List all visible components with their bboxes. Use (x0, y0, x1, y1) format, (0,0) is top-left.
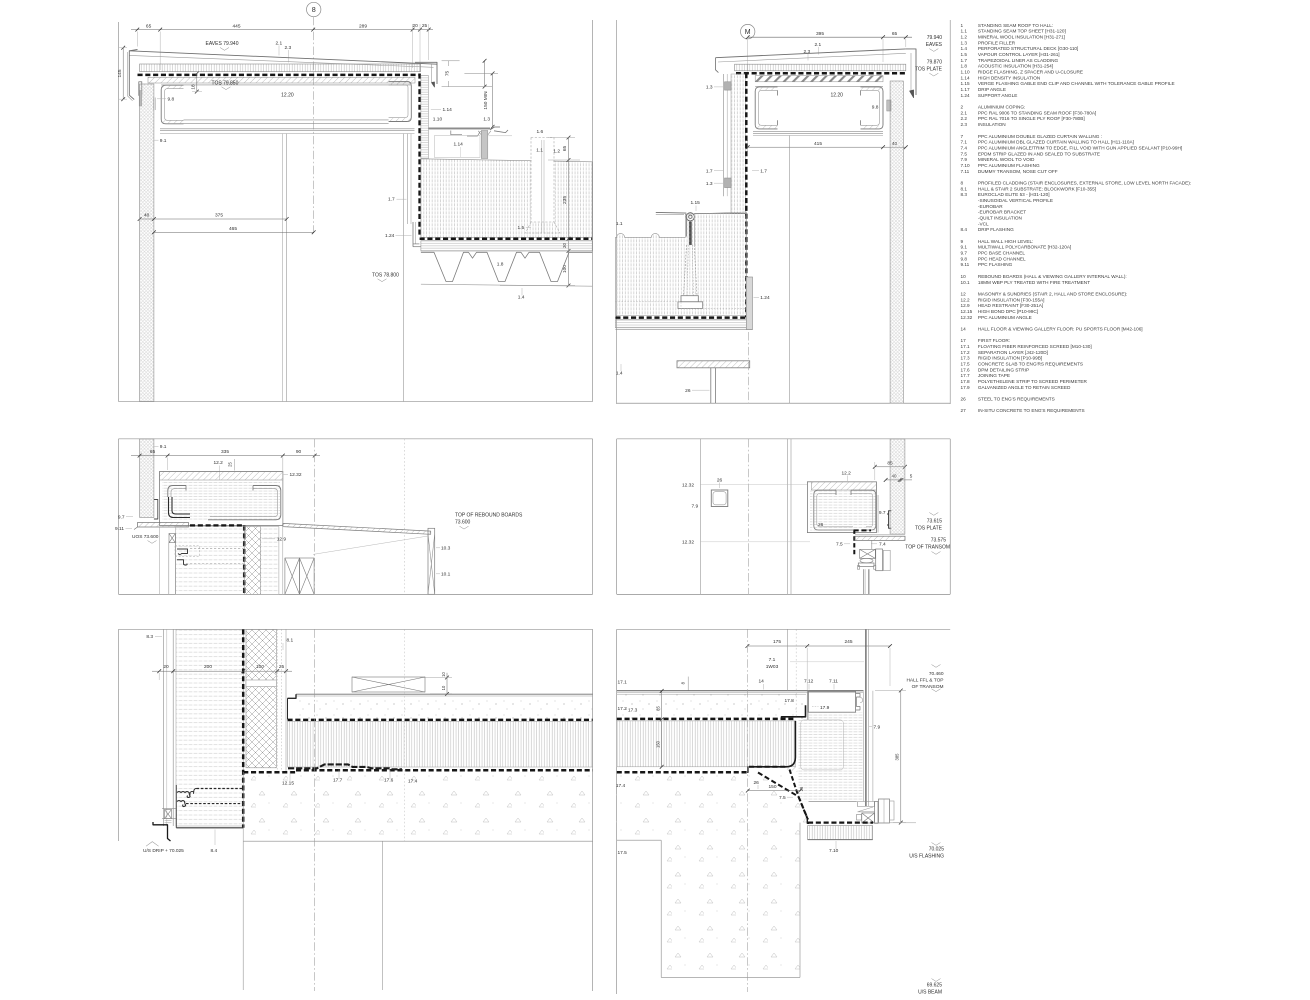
svg-text:2.2: 2.2 (961, 116, 968, 121)
svg-text:18: 18 (191, 84, 197, 90)
svg-text:20: 20 (413, 23, 419, 29)
svg-text:IN-SITU CONCRETE TO ENG'S REQU: IN-SITU CONCRETE TO ENG'S REQUIREMENTS (978, 408, 1085, 413)
svg-text:PPC ALUMINIUM DOUBLE GLAZED CU: PPC ALUMINIUM DOUBLE GLAZED CURTAIN WALL… (978, 134, 1102, 139)
svg-text:HIGH DENSITY INSULATION: HIGH DENSITY INSULATION (978, 75, 1040, 80)
svg-text:26: 26 (818, 522, 824, 528)
svg-text:415: 415 (814, 141, 822, 147)
svg-text:17.2: 17.2 (961, 350, 971, 355)
svg-text:1.3: 1.3 (706, 85, 713, 91)
svg-text:73.600: 73.600 (455, 519, 471, 525)
svg-text:75: 75 (444, 71, 450, 77)
svg-text:27: 27 (961, 408, 967, 413)
svg-text:FLOATING FIBER REINFORCED SCRE: FLOATING FIBER REINFORCED SCREED [M10-13… (978, 344, 1092, 349)
svg-text:ACOUSTIC INSULATION [H31-254]: ACOUSTIC INSULATION [H31-254] (978, 64, 1053, 69)
svg-text:1.5: 1.5 (961, 52, 968, 57)
svg-text:17.1: 17.1 (618, 680, 628, 686)
svg-text:FIRST FLOOR:: FIRST FLOOR: (978, 338, 1010, 343)
svg-text:25: 25 (799, 786, 804, 791)
svg-text:EUROCLAD ELITE 53 - [H31-120]: EUROCLAD ELITE 53 - [H31-120] (978, 192, 1050, 197)
svg-text:235: 235 (562, 196, 568, 204)
svg-text:2.3: 2.3 (961, 122, 968, 127)
svg-text:70.025: 70.025 (929, 846, 945, 852)
svg-text:17.2: 17.2 (618, 706, 628, 712)
svg-text:1.2: 1.2 (553, 148, 560, 154)
svg-text:40: 40 (144, 213, 150, 219)
svg-text:7.11: 7.11 (829, 679, 838, 685)
svg-text:TOS PLATE: TOS PLATE (915, 66, 943, 72)
svg-text:79.940: 79.940 (927, 35, 943, 41)
svg-text:17.8: 17.8 (785, 698, 795, 704)
svg-text:12.20: 12.20 (281, 93, 294, 99)
svg-text:1.3: 1.3 (961, 40, 968, 45)
svg-text:200: 200 (204, 664, 212, 670)
svg-text:7.5: 7.5 (836, 541, 843, 547)
svg-text:26: 26 (717, 477, 723, 483)
svg-text:1.8: 1.8 (961, 64, 968, 69)
svg-text:10.1: 10.1 (441, 571, 451, 577)
svg-text:90: 90 (296, 449, 302, 455)
svg-text:HIGH BOND DPC [P10-99C]: HIGH BOND DPC [P10-99C] (978, 309, 1038, 314)
svg-text:VAPOUR CONTROL LAYER [H31-261]: VAPOUR CONTROL LAYER [H31-261] (978, 52, 1060, 57)
svg-text:9.1: 9.1 (160, 444, 167, 450)
svg-text:17.8: 17.8 (961, 379, 971, 384)
svg-text:12.2: 12.2 (214, 460, 224, 466)
svg-text:-VCL: -VCL (978, 221, 989, 226)
svg-text:POLYETHELENE STRIP TO SCREED P: POLYETHELENE STRIP TO SCREED PERIMETER (978, 379, 1088, 384)
svg-text:8.1: 8.1 (961, 186, 968, 191)
svg-text:85: 85 (655, 706, 660, 711)
svg-text:7.9: 7.9 (692, 504, 699, 510)
svg-text:7.1: 7.1 (769, 657, 776, 663)
svg-text:7.5: 7.5 (961, 151, 968, 156)
svg-text:1.1: 1.1 (536, 147, 543, 153)
svg-text:UOS 73.600: UOS 73.600 (132, 534, 159, 540)
svg-text:PPC HEAD CHANNEL: PPC HEAD CHANNEL (978, 256, 1026, 261)
svg-text:TOP OF REBOUND BOARDS: TOP OF REBOUND BOARDS (455, 512, 523, 518)
svg-text:14: 14 (759, 679, 765, 685)
svg-text:17.3: 17.3 (961, 356, 971, 361)
svg-text:5: 5 (910, 474, 913, 479)
svg-text:1.4: 1.4 (518, 294, 525, 300)
svg-text:STEEL TO ENG'S REQUIREMENTS: STEEL TO ENG'S REQUIREMENTS (978, 397, 1055, 402)
svg-text:7.9: 7.9 (961, 157, 968, 162)
svg-text:1.17: 1.17 (961, 87, 971, 92)
svg-text:12.2: 12.2 (961, 297, 971, 302)
svg-text:73.575: 73.575 (931, 538, 947, 544)
svg-text:2: 2 (961, 105, 964, 110)
svg-text:STANDING SEAM ROOF TO HALL:: STANDING SEAM ROOF TO HALL: (978, 23, 1053, 28)
svg-text:TOP OF TRANSOM: TOP OF TRANSOM (905, 545, 950, 551)
svg-text:17.6: 17.6 (961, 367, 971, 372)
svg-text:8.1: 8.1 (287, 637, 294, 643)
svg-text:7.1: 7.1 (961, 140, 968, 145)
svg-text:ALUMINIUM COPING:: ALUMINIUM COPING: (978, 105, 1025, 110)
svg-text:17.7: 17.7 (333, 778, 343, 784)
svg-text:7.4: 7.4 (961, 145, 968, 150)
svg-text:1.24: 1.24 (961, 93, 971, 98)
svg-text:VERGE FLASHING GABLE END CLIP: VERGE FLASHING GABLE END CLIP AND CHANNE… (978, 81, 1175, 86)
svg-text:12.32: 12.32 (290, 472, 302, 478)
svg-text:OF TRANSOM: OF TRANSOM (912, 684, 944, 690)
svg-text:12.20: 12.20 (830, 93, 843, 99)
svg-text:289: 289 (359, 24, 367, 30)
svg-text:1.14: 1.14 (443, 107, 453, 113)
svg-text:1.7: 1.7 (760, 168, 767, 174)
svg-text:17.4: 17.4 (408, 779, 418, 785)
svg-text:-QUILT INSULATION: -QUILT INSULATION (978, 216, 1022, 221)
svg-text:8: 8 (961, 180, 964, 185)
svg-text:PPC ALUMINIUM FLASHING: PPC ALUMINIUM FLASHING (978, 163, 1040, 168)
svg-text:1.15: 1.15 (961, 81, 971, 86)
svg-text:GALVANIZED ANGLE TO RETAIN SCR: GALVANIZED ANGLE TO RETAIN SCREED (978, 385, 1071, 390)
svg-text:175: 175 (773, 639, 781, 645)
svg-text:TRAPEZOIDAL LINER AS CLADDING: TRAPEZOIDAL LINER AS CLADDING (978, 58, 1059, 63)
svg-text:1.7: 1.7 (706, 168, 713, 174)
svg-text:1.1: 1.1 (961, 29, 968, 34)
svg-text:17.9: 17.9 (961, 385, 971, 390)
svg-text:U/S BEAM: U/S BEAM (918, 990, 942, 996)
svg-text:PPC RAL 7016 TO SINGLE PLY ROO: PPC RAL 7016 TO SINGLE PLY ROOF [F30-780… (978, 116, 1085, 121)
svg-text:HALL WALL HIGH LEVEL:: HALL WALL HIGH LEVEL: (978, 239, 1034, 244)
svg-text:9.8: 9.8 (872, 105, 879, 111)
svg-text:65: 65 (892, 31, 898, 37)
svg-text:1: 1 (961, 23, 964, 28)
svg-text:1.3: 1.3 (483, 117, 490, 123)
svg-text:1.2: 1.2 (961, 34, 968, 39)
svg-text:SEPARATION LAYER [J42-120D]: SEPARATION LAYER [J42-120D] (978, 350, 1048, 355)
svg-text:7.11: 7.11 (961, 169, 970, 174)
svg-text:335: 335 (221, 449, 229, 455)
svg-text:12.32: 12.32 (961, 315, 973, 320)
svg-text:2.1: 2.1 (961, 110, 968, 115)
svg-text:CONCRETE SLAB TO ENG'RS REQUIR: CONCRETE SLAB TO ENG'RS REQUIREMENTS (978, 362, 1083, 367)
svg-text:17.5: 17.5 (961, 362, 971, 367)
svg-text:1.8: 1.8 (497, 261, 504, 267)
svg-text:25: 25 (422, 23, 428, 29)
svg-text:MINERAL WOOL TO VOID: MINERAL WOOL TO VOID (978, 157, 1035, 162)
svg-text:375: 375 (215, 213, 223, 219)
svg-text:26: 26 (961, 397, 967, 402)
svg-text:17.9: 17.9 (820, 705, 830, 711)
svg-text:9.8: 9.8 (961, 256, 968, 261)
svg-text:MULTIWALL POLYCARBONATE [H32-1: MULTIWALL POLYCARBONATE [H32-120A] (978, 245, 1071, 250)
svg-text:10: 10 (441, 685, 446, 690)
svg-text:1.7: 1.7 (961, 58, 968, 63)
svg-text:U/S DRIP + 70.025: U/S DRIP + 70.025 (143, 848, 184, 854)
svg-text:26: 26 (685, 388, 691, 394)
svg-text:17.3: 17.3 (628, 707, 638, 713)
svg-text:70.460: 70.460 (929, 671, 944, 677)
svg-text:TOS 78.800: TOS 78.800 (372, 272, 399, 278)
svg-text:465: 465 (229, 226, 237, 232)
svg-text:EPDM STRIP GLAZED IN AND SEALE: EPDM STRIP GLAZED IN AND SEALED TO SUBST… (978, 151, 1100, 156)
svg-text:U/S FLASHING: U/S FLASHING (909, 853, 944, 859)
svg-text:1.24: 1.24 (385, 233, 395, 239)
svg-text:-SINUSOIDAL VERTICAL PROFILE: -SINUSOIDAL VERTICAL PROFILE (978, 198, 1053, 203)
svg-text:RIDGE FLASHING, Z SPACER AND U: RIDGE FLASHING, Z SPACER AND U-CLOSURE (978, 70, 1083, 75)
svg-text:HALL FFL & TOP: HALL FFL & TOP (906, 678, 943, 684)
svg-text:1.1: 1.1 (616, 221, 623, 227)
svg-text:8.3: 8.3 (146, 634, 153, 640)
svg-text:1W03: 1W03 (766, 664, 779, 670)
svg-text:1.14: 1.14 (454, 141, 464, 147)
svg-text:PERFORATED STRUCTURAL DECK [G3: PERFORATED STRUCTURAL DECK [G30-110] (978, 46, 1078, 51)
svg-text:17.5: 17.5 (618, 850, 628, 856)
svg-text:HEAD RESTRAINT [F30-251A]: HEAD RESTRAINT [F30-251A] (978, 303, 1043, 308)
svg-text:8: 8 (312, 5, 316, 14)
svg-text:245: 245 (844, 639, 852, 645)
svg-text:SUPPORT ANGLE: SUPPORT ANGLE (978, 93, 1017, 98)
svg-text:150 MIN: 150 MIN (483, 91, 489, 110)
svg-text:2.3: 2.3 (285, 45, 292, 51)
svg-text:RIGID INSULATION [F30-155A]: RIGID INSULATION [F30-155A] (978, 297, 1045, 302)
svg-text:8.4: 8.4 (211, 848, 218, 854)
svg-text:-EUROBAR: -EUROBAR (978, 204, 1003, 209)
svg-text:10: 10 (961, 274, 967, 279)
svg-text:17.1: 17.1 (961, 344, 971, 349)
svg-text:79.870: 79.870 (927, 59, 943, 65)
svg-text:12: 12 (961, 291, 967, 296)
svg-text:1.15: 1.15 (691, 200, 701, 206)
svg-text:145: 145 (117, 69, 123, 77)
svg-text:20: 20 (163, 664, 169, 670)
svg-text:EAVES: EAVES (926, 42, 943, 48)
svg-text:1.10: 1.10 (433, 117, 443, 123)
svg-text:PPC ALUMINIUM ANGLE: PPC ALUMINIUM ANGLE (978, 315, 1032, 320)
svg-text:7: 7 (961, 134, 964, 139)
svg-text:-EUROBAR BRACKET: -EUROBAR BRACKET (978, 210, 1026, 215)
svg-text:7.4: 7.4 (879, 541, 886, 547)
svg-text:10.3: 10.3 (441, 545, 451, 551)
svg-text:17.7: 17.7 (961, 373, 971, 378)
svg-text:8.3: 8.3 (961, 192, 968, 197)
svg-text:150: 150 (768, 784, 776, 790)
svg-text:PPC ALUMINIUM DBL GLAZED CURTA: PPC ALUMINIUM DBL GLAZED CURTAIN WALLING… (978, 140, 1134, 145)
svg-text:65: 65 (562, 146, 568, 152)
svg-text:9.11: 9.11 (961, 262, 970, 267)
svg-text:PPC ALUMINIUM ANGLE/TRIM TO ED: PPC ALUMINIUM ANGLE/TRIM TO EDGE, FILL V… (978, 145, 1182, 150)
svg-text:STANDING SEAM TOP SHEET [H31-1: STANDING SEAM TOP SHEET [H31-120] (978, 29, 1066, 34)
svg-text:65: 65 (146, 24, 152, 30)
svg-text:TOS 79.850: TOS 79.850 (212, 80, 239, 86)
svg-text:MINERAL WOOL INSULATION [H31-2: MINERAL WOOL INSULATION [H31-271] (978, 34, 1065, 39)
svg-text:17: 17 (961, 338, 967, 343)
svg-text:9.7: 9.7 (961, 251, 968, 256)
svg-text:M: M (745, 29, 751, 36)
svg-text:18MM WBP PLY TREATED WITH FIRE: 18MM WBP PLY TREATED WITH FIRE TREATMENT (978, 280, 1090, 285)
svg-text:9.1: 9.1 (961, 245, 968, 250)
svg-text:PROFILED CLADDING (STAIR ENCLO: PROFILED CLADDING (STAIR ENCLOSURES, EXT… (978, 180, 1191, 185)
svg-text:7.9: 7.9 (874, 724, 881, 730)
svg-text:1.3: 1.3 (706, 181, 713, 187)
svg-text:1.24: 1.24 (760, 295, 770, 301)
svg-text:12.15: 12.15 (282, 780, 294, 786)
svg-text:TOS PLATE: TOS PLATE (915, 525, 943, 531)
svg-text:1.10: 1.10 (961, 70, 971, 75)
svg-text:PPC RAL 9006 TO STANDING SEAM: PPC RAL 9006 TO STANDING SEAM ROOF [F30-… (978, 110, 1096, 115)
svg-text:PPC FLASHING: PPC FLASHING (978, 262, 1013, 267)
svg-text:12.2: 12.2 (842, 470, 852, 476)
svg-text:9.7: 9.7 (879, 510, 886, 516)
svg-text:150: 150 (655, 740, 660, 748)
svg-text:9: 9 (961, 239, 964, 244)
svg-text:REBOUND BOARDS (HALL & VIEWING: REBOUND BOARDS (HALL & VIEWING GALLERY I… (978, 274, 1127, 279)
svg-text:7.10: 7.10 (961, 163, 971, 168)
svg-text:12.15: 12.15 (961, 309, 973, 314)
svg-text:8.4: 8.4 (961, 227, 968, 232)
svg-text:100: 100 (562, 265, 568, 273)
svg-text:9.1: 9.1 (160, 138, 167, 144)
svg-text:1.6: 1.6 (537, 129, 544, 135)
svg-text:1.14: 1.14 (961, 75, 971, 80)
svg-text:1.5: 1.5 (518, 225, 525, 231)
svg-text:INSULATION: INSULATION (978, 122, 1006, 127)
svg-text:HALL & STAIR 2 SUBSTRATE: BLOC: HALL & STAIR 2 SUBSTRATE: BLOCKWORK [F10… (978, 186, 1096, 191)
svg-text:2.1: 2.1 (815, 42, 822, 48)
svg-text:JOINING TAPE: JOINING TAPE (978, 373, 1010, 378)
svg-text:PROFILE FILLER: PROFILE FILLER (978, 40, 1016, 45)
svg-text:26: 26 (754, 780, 760, 786)
svg-text:7.5: 7.5 (779, 795, 786, 801)
svg-text:12.9: 12.9 (961, 303, 971, 308)
svg-text:17.6: 17.6 (384, 778, 394, 784)
svg-text:DPM DETAILING STRIP: DPM DETAILING STRIP (978, 367, 1029, 372)
svg-text:385: 385 (895, 753, 900, 761)
svg-text:DRIP FLASHING: DRIP FLASHING (978, 227, 1014, 232)
svg-text:9.11: 9.11 (115, 526, 124, 532)
svg-text:25: 25 (228, 462, 233, 467)
svg-text:7.10: 7.10 (829, 848, 839, 854)
svg-text:PPC BASE CHANNEL: PPC BASE CHANNEL (978, 251, 1026, 256)
svg-text:12.32: 12.32 (682, 482, 694, 488)
svg-text:10.1: 10.1 (961, 280, 971, 285)
svg-text:10: 10 (441, 672, 446, 677)
svg-text:14: 14 (961, 326, 967, 331)
svg-text:DRIP ANGLE: DRIP ANGLE (978, 87, 1006, 92)
svg-text:1.4: 1.4 (616, 370, 623, 376)
svg-text:65: 65 (150, 449, 156, 455)
svg-text:RIGID INSULATION [P10-99B]: RIGID INSULATION [P10-99B] (978, 356, 1042, 361)
svg-text:EAVES 79.940: EAVES 79.940 (206, 41, 239, 47)
svg-text:1.7: 1.7 (388, 197, 395, 203)
svg-text:9.8: 9.8 (168, 96, 175, 102)
svg-text:12.32: 12.32 (682, 539, 694, 545)
svg-text:HALL FLOOR & VIEWING GALLERY F: HALL FLOOR & VIEWING GALLERY FLOOR: PU S… (978, 326, 1143, 331)
svg-text:69.625: 69.625 (927, 983, 943, 989)
svg-text:7.12: 7.12 (804, 679, 814, 685)
svg-text:395: 395 (816, 31, 824, 37)
svg-text:DUMMY TRANSOM, NOSE CUT OFF: DUMMY TRANSOM, NOSE CUT OFF (978, 169, 1058, 174)
svg-text:9.7: 9.7 (118, 514, 125, 520)
svg-text:1.4: 1.4 (961, 46, 968, 51)
svg-text:17.4: 17.4 (616, 783, 626, 789)
svg-text:445: 445 (232, 24, 240, 30)
svg-text:73.615: 73.615 (927, 518, 943, 524)
svg-text:MASONRY & SUNDRIES (STAIR 2, H: MASONRY & SUNDRIES (STAIR 2, HALL AND ST… (978, 291, 1128, 296)
